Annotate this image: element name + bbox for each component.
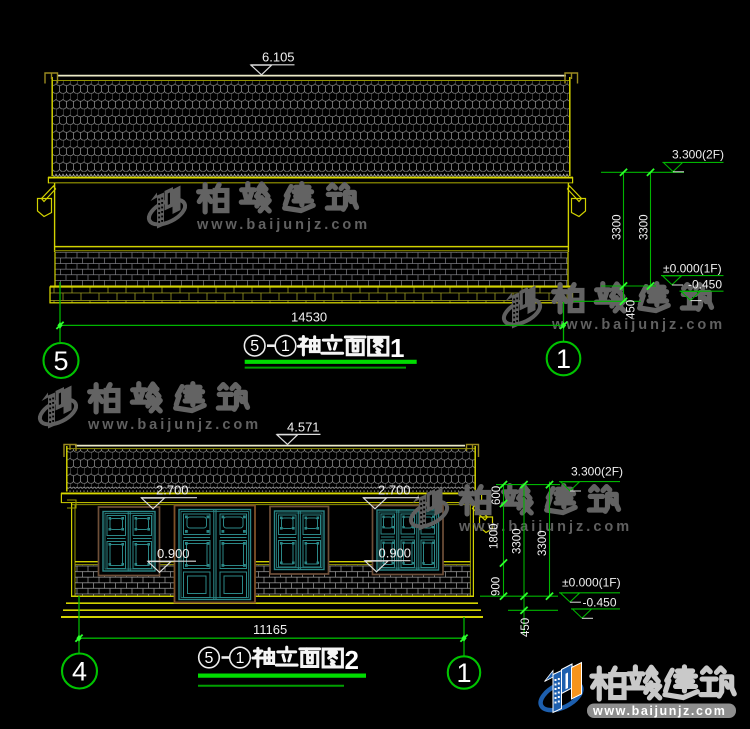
svg-text:5: 5 xyxy=(205,650,214,667)
svg-text:0.900: 0.900 xyxy=(379,546,412,561)
svg-text:2.700: 2.700 xyxy=(378,483,411,498)
svg-text:0.900: 0.900 xyxy=(157,546,190,561)
svg-text:±0.000(1F): ±0.000(1F) xyxy=(663,262,722,276)
svg-text:3.300(2F): 3.300(2F) xyxy=(571,465,623,479)
svg-text:11165: 11165 xyxy=(253,622,287,637)
svg-text:±0.000(1F): ±0.000(1F) xyxy=(562,576,621,590)
svg-text:3300: 3300 xyxy=(612,214,624,240)
svg-text:www.baijunjz.com: www.baijunjz.com xyxy=(592,704,726,718)
svg-text:14530: 14530 xyxy=(291,310,327,325)
svg-text:900: 900 xyxy=(491,577,503,596)
svg-text:3300: 3300 xyxy=(537,530,549,556)
svg-text:4: 4 xyxy=(72,657,87,687)
svg-text:-0.450: -0.450 xyxy=(688,278,722,292)
svg-text:600: 600 xyxy=(491,486,503,505)
svg-text:5: 5 xyxy=(250,338,259,355)
svg-text:450: 450 xyxy=(626,300,638,319)
svg-text:3300: 3300 xyxy=(512,528,524,554)
svg-text:1: 1 xyxy=(281,338,290,355)
svg-text:1: 1 xyxy=(236,650,245,667)
svg-text:1: 1 xyxy=(556,344,571,374)
svg-text:2: 2 xyxy=(345,645,359,675)
svg-text:450: 450 xyxy=(520,618,532,637)
svg-text:2.700: 2.700 xyxy=(156,483,189,498)
svg-text:6.105: 6.105 xyxy=(262,50,295,65)
svg-text:3.300(2F): 3.300(2F) xyxy=(672,148,724,162)
svg-text:-0.450: -0.450 xyxy=(583,596,617,610)
svg-text:4.571: 4.571 xyxy=(287,420,320,435)
svg-text:1: 1 xyxy=(456,658,471,688)
svg-text:3300: 3300 xyxy=(639,214,651,240)
svg-text:5: 5 xyxy=(53,346,68,376)
svg-text:1: 1 xyxy=(390,333,404,363)
svg-text:1800: 1800 xyxy=(489,523,501,549)
